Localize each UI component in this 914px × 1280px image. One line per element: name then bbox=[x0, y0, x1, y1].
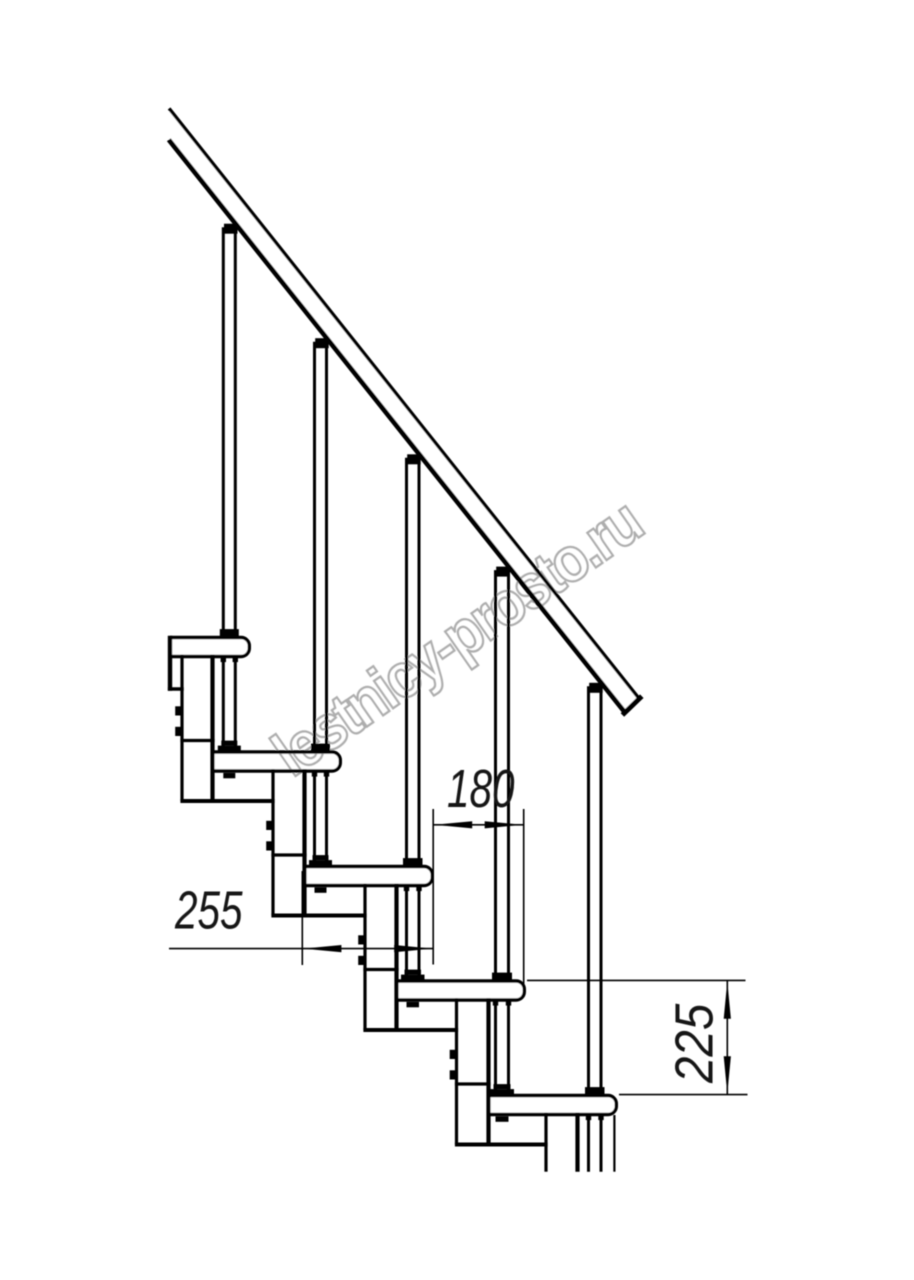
svg-text:255: 255 bbox=[174, 881, 243, 941]
svg-text:225: 225 bbox=[664, 1003, 725, 1084]
svg-text:180: 180 bbox=[447, 759, 515, 819]
